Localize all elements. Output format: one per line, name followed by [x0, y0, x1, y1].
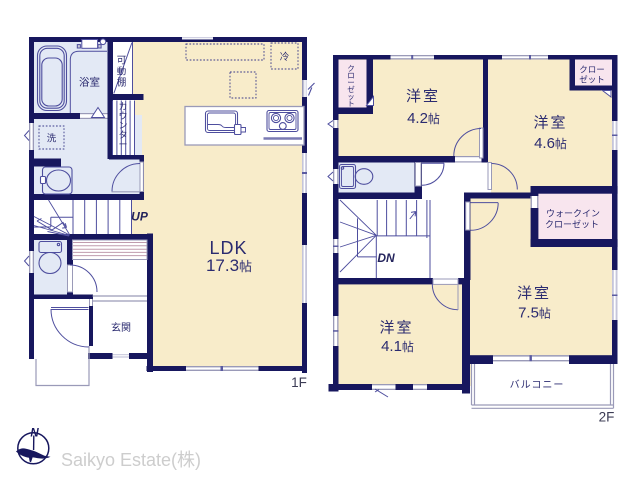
- svg-text:可: 可: [117, 56, 127, 67]
- svg-text:7.5帖: 7.5帖: [518, 304, 551, 321]
- svg-text:ウォークイン: ウォークイン: [546, 209, 600, 219]
- svg-text:ー: ー: [118, 140, 127, 150]
- svg-text:クロー: クロー: [579, 65, 605, 75]
- svg-text:ト: ト: [347, 99, 355, 108]
- svg-text:カ: カ: [118, 102, 127, 112]
- svg-text:ン: ン: [118, 121, 127, 131]
- svg-text:1F: 1F: [291, 375, 307, 390]
- svg-text:ウ: ウ: [118, 111, 127, 121]
- svg-text:冷: 冷: [280, 51, 290, 63]
- svg-text:4.6帖: 4.6帖: [534, 135, 567, 152]
- svg-text:17.3帖: 17.3帖: [206, 256, 252, 275]
- svg-text:洋室: 洋室: [379, 320, 413, 337]
- svg-text:LDK: LDK: [209, 238, 247, 258]
- svg-text:動: 動: [117, 67, 127, 78]
- svg-text:ゼット: ゼット: [579, 75, 605, 85]
- svg-text:洋室: 洋室: [406, 88, 440, 105]
- svg-text:洋室: 洋室: [517, 285, 551, 302]
- svg-text:洋室: 洋室: [533, 115, 567, 132]
- svg-text:浴室: 浴室: [79, 76, 100, 89]
- svg-text:玄関: 玄関: [111, 321, 131, 334]
- svg-text:タ: タ: [118, 130, 127, 140]
- svg-text:4.2帖: 4.2帖: [407, 110, 440, 127]
- svg-text:4.1帖: 4.1帖: [381, 338, 414, 355]
- svg-text:バルコニー: バルコニー: [510, 379, 565, 391]
- svg-text:UP: UP: [131, 210, 149, 224]
- svg-text:棚: 棚: [117, 77, 127, 89]
- svg-text:DN: DN: [377, 251, 395, 265]
- svg-text:クローゼット: クローゼット: [545, 219, 599, 230]
- svg-text:洗: 洗: [47, 133, 57, 145]
- svg-text:2F: 2F: [599, 410, 615, 425]
- svg-text:Saikyo Estate(株): Saikyo Estate(株): [61, 450, 201, 470]
